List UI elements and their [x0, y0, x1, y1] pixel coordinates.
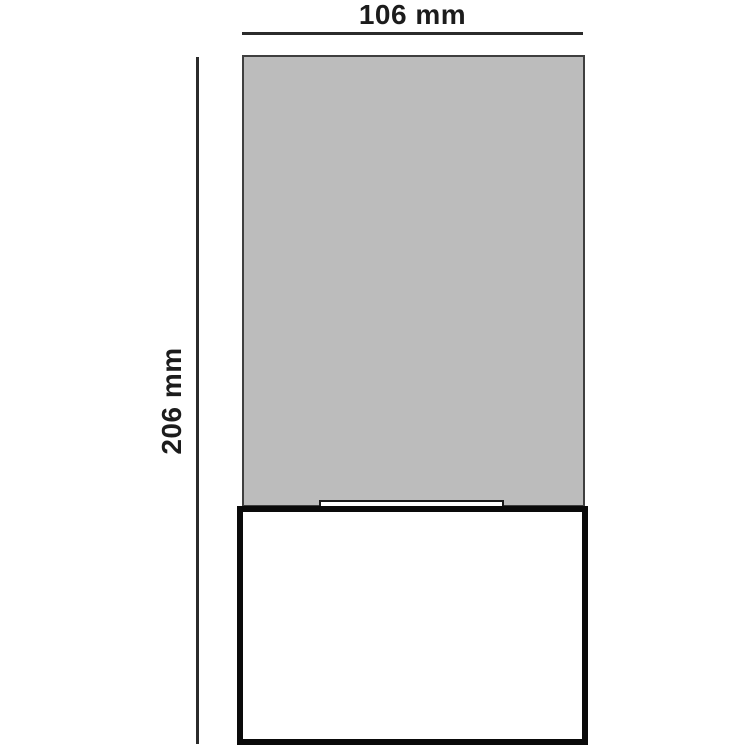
- dimension-diagram: 106 mm 206 mm: [0, 0, 750, 750]
- width-dimension-label: 106 mm: [242, 0, 583, 30]
- product-body-gray: [242, 55, 585, 507]
- product-base-white: [237, 506, 588, 745]
- height-dimension-label: 206 mm: [156, 347, 188, 454]
- width-dimension-line: [242, 32, 583, 35]
- height-dimension-line: [196, 57, 199, 744]
